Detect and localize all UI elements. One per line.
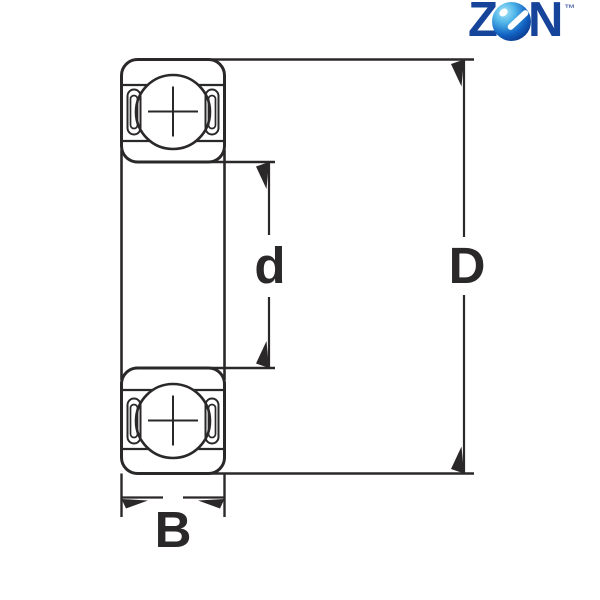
d-arrow-up-icon — [256, 162, 269, 189]
dimension-B: B — [122, 474, 225, 559]
dimension-label-D: D — [449, 237, 486, 294]
dimension-label-d: d — [254, 237, 285, 294]
B-arrow-left-icon — [122, 499, 149, 509]
dimension-label-B: B — [155, 501, 192, 558]
trademark-symbol: ™ — [564, 3, 575, 15]
logo-ball-slash-icon — [506, 9, 529, 31]
d-arrow-down-icon — [256, 341, 269, 368]
D-arrow-down-icon — [451, 447, 464, 474]
bottom-bearing-section — [122, 368, 225, 474]
logo-ball-icon — [492, 2, 531, 41]
logo-ball-highlight-dot-icon — [498, 7, 509, 18]
top-bearing-section — [122, 60, 225, 163]
D-arrow-up-icon — [451, 60, 464, 87]
dimension-d: d — [135, 162, 286, 368]
zen-logo: Z N ™ — [468, 0, 575, 41]
B-arrow-right-icon — [198, 499, 225, 509]
bearing-dimension-diagram: Z N ™ — [0, 0, 600, 600]
bore-lines — [122, 150, 225, 380]
logo-letter-n: N — [528, 0, 562, 40]
bearing-drawing: d D B — [0, 0, 600, 600]
